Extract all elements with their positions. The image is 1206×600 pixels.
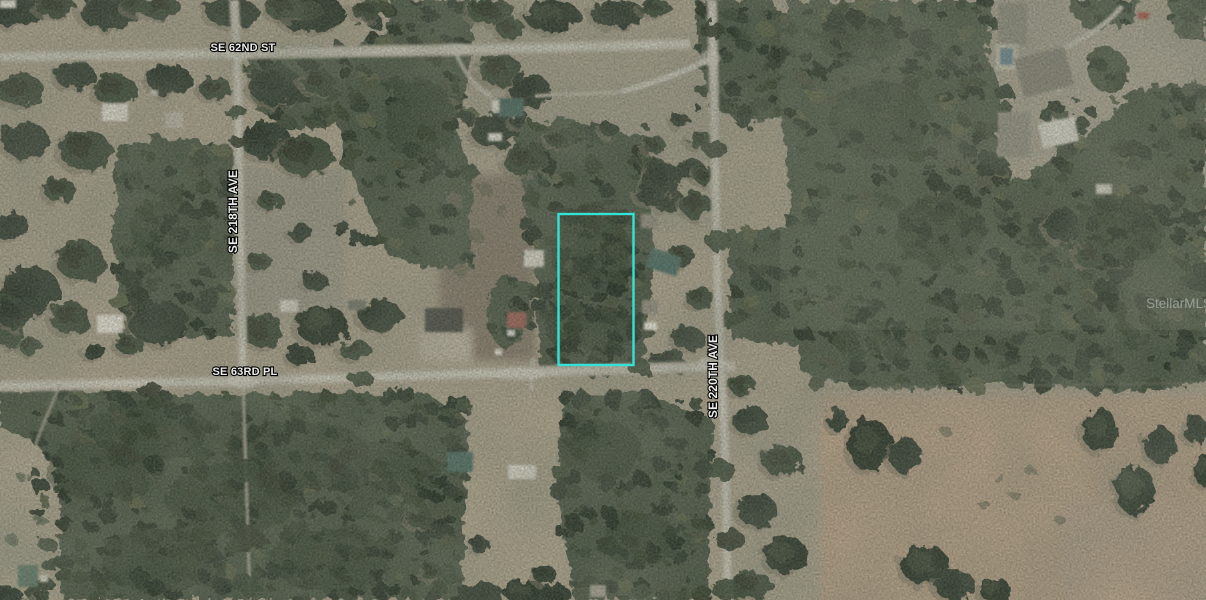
svg-text:SE 220TH AVE: SE 220TH AVE bbox=[706, 335, 720, 418]
svg-text:SE 63RD PL: SE 63RD PL bbox=[213, 366, 278, 378]
svg-text:StellarMLS: StellarMLS bbox=[1146, 296, 1206, 311]
svg-text:SE 62ND ST: SE 62ND ST bbox=[211, 42, 276, 54]
svg-text:SE 218TH AVE: SE 218TH AVE bbox=[226, 170, 240, 253]
